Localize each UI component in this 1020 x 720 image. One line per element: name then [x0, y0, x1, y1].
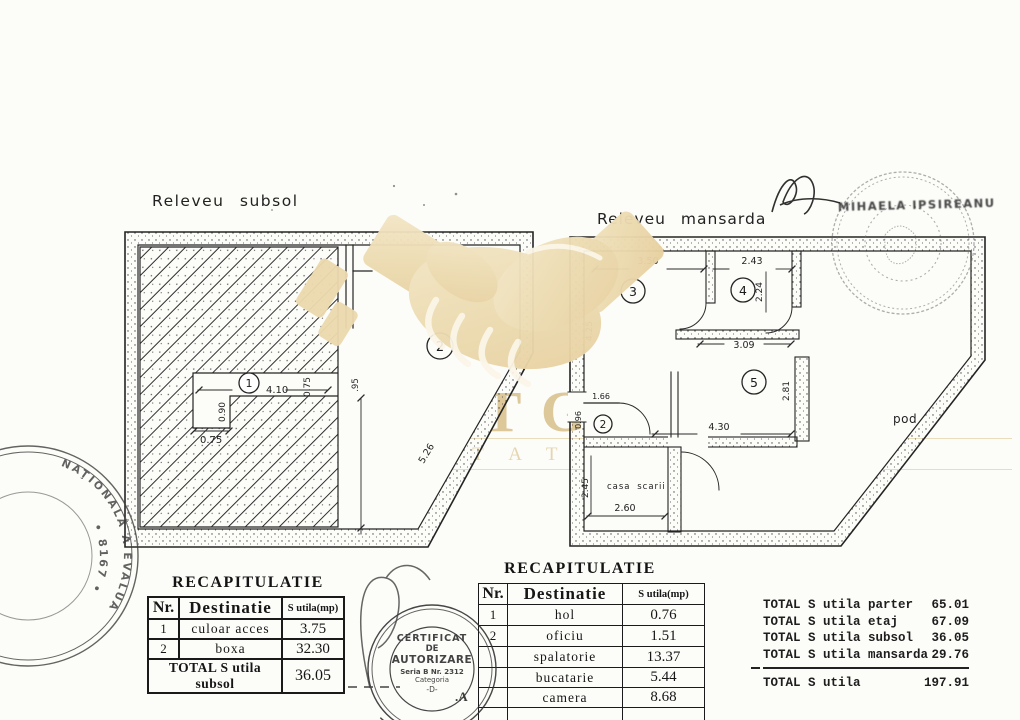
- mansarda-door-arcs: [619, 303, 792, 490]
- scanned-floorplan-document: TRUST GROUP ESTATE Releveu subsol: [0, 0, 1020, 720]
- svg-text:• 8167 •: • 8167 •: [88, 522, 110, 596]
- header-nr: Nr.: [479, 584, 508, 605]
- cert-line-2: DE: [426, 644, 439, 654]
- dimension-label: 2.81: [782, 381, 792, 401]
- cell-nr: [479, 668, 508, 688]
- cell-s: 1.51: [623, 626, 705, 647]
- signature-top-right: [772, 176, 840, 214]
- cell-dest: culoar acces: [179, 619, 282, 639]
- mansarda-room-labels: pod casa scarii: [607, 412, 917, 492]
- stamp-number: • 8167 •: [88, 522, 110, 596]
- svg-text:NAŢIONALĂ A EVALUA: NAŢIONALĂ A EVALUA: [60, 457, 133, 614]
- table-row: 1 hol 0.76: [479, 605, 705, 626]
- room-number: 5: [750, 375, 758, 390]
- dimension-label: 3.09: [733, 340, 754, 351]
- dimension-label: 3.50: [637, 256, 658, 267]
- cell-dest: hol: [508, 605, 623, 626]
- room-number: 2: [600, 419, 607, 431]
- total-value: 67.09: [931, 614, 969, 631]
- cell-dest: oficiu: [508, 626, 623, 647]
- cell-nr: 1: [479, 605, 508, 626]
- dimension-label: 2.45: [581, 478, 591, 498]
- total-line: TOTAL S utila subsol 36.05: [763, 630, 969, 647]
- cert-line-5: Categoria: [415, 676, 449, 684]
- dimension-label: 2.60: [614, 503, 635, 514]
- mansarda-table-title: RECAPITULATIE: [500, 560, 660, 578]
- header-dest: Destinatie: [508, 584, 623, 605]
- total-label: TOTAL S utila subsol: [763, 630, 913, 647]
- cert-line-4: Seria B Nr. 2312: [400, 668, 464, 676]
- mansarda-plan-title: Releveu mansarda: [597, 210, 766, 228]
- subsol-recap-table: Nr. Destinatie S utila(mp) 1 culoar acce…: [147, 596, 345, 694]
- cell-nr: [479, 688, 508, 708]
- watermark-rule-bottom: [330, 469, 1012, 470]
- total-value: 65.01: [931, 597, 969, 614]
- table-total-row: TOTAL S utila subsol 36.05: [148, 659, 344, 693]
- subsol-plan-title: Releveu subsol: [152, 192, 299, 210]
- cell-dest: boxa: [179, 639, 282, 659]
- total-value: 29.76: [931, 647, 969, 664]
- subsol-dimensions: 4.10 0.75 0.90 0.75 .95 5.26: [200, 377, 437, 466]
- cert-line-3: AUTORIZARE: [392, 654, 472, 666]
- cell-nr: 1: [148, 619, 179, 639]
- signature-bottom: [361, 565, 430, 688]
- subsol-room-markers: 1 2: [239, 333, 453, 393]
- grand-total-line: TOTAL S utila 197.91: [763, 674, 969, 692]
- left-round-stamp: NAŢIONALĂ A EVALUA • 8167 •: [0, 446, 138, 666]
- dimension-label: 4.25: [585, 321, 595, 341]
- cell-nr: [479, 708, 508, 720]
- total-label: TOTAL S utila parter: [763, 597, 913, 614]
- header-nr: Nr.: [148, 597, 179, 619]
- cell-s: 5.44: [623, 668, 705, 688]
- dimension-label: 0.75: [303, 377, 313, 397]
- total-label: TOTAL S utila mansarda: [763, 647, 928, 664]
- handshake-watermark: [294, 208, 667, 388]
- stamp-arc-text: NAŢIONALĂ A EVALUA: [60, 457, 133, 614]
- grand-total-value: 197.91: [924, 674, 969, 692]
- mansarda-interior-walls: [584, 251, 809, 532]
- total-label: TOTAL S utila subsol: [148, 659, 282, 693]
- watermark-brand-text: TRUST GROUP: [316, 378, 765, 445]
- dimension-label: 0.75: [200, 435, 222, 446]
- dimension-label: .95: [351, 378, 361, 392]
- cert-line-6: -D-: [426, 685, 437, 694]
- room-number: 3: [629, 284, 637, 299]
- table-header-row: Nr. Destinatie S utila(mp): [479, 584, 705, 605]
- table-row: bucatarie 5.44: [479, 668, 705, 688]
- total-line: TOTAL S utila parter 65.01: [763, 597, 969, 614]
- area-totals-block: TOTAL S utila parter 65.01 TOTAL S utila…: [763, 597, 969, 692]
- cell-dest: [508, 708, 623, 720]
- table-row: 2 boxa 32.30: [148, 639, 344, 659]
- cell-s: 3.75: [282, 619, 344, 639]
- mansarda-walls: [568, 237, 985, 546]
- bottom-certificate-stamp: MINISTERUL ADMINISTRAŢIEI PUBLICE CERTIF…: [348, 565, 496, 720]
- watermark-rule-top: [330, 438, 1012, 439]
- mansarda-room-markers: 3 4 5 2: [594, 278, 766, 433]
- subsol-table-title: RECAPITULATIE: [158, 574, 338, 592]
- header-s: S utila(mp): [623, 584, 705, 605]
- cell-nr: 2: [148, 639, 179, 659]
- header-s: S utila(mp): [282, 597, 344, 619]
- subsol-plan: Releveu subsol 4.10 0.75: [125, 192, 533, 547]
- scan-noise: [271, 185, 457, 211]
- total-line: TOTAL S utila mansarda 29.76: [763, 647, 969, 664]
- dimension-label: 5.26: [417, 442, 437, 466]
- table-row: 1 culoar acces 3.75: [148, 619, 344, 639]
- dimension-label: 2.43: [741, 256, 762, 267]
- cell-nr: [479, 647, 508, 668]
- dimension-label: 0.90: [218, 402, 228, 422]
- total-label: TOTAL S utila etaj: [763, 614, 898, 631]
- cell-s: 13.37: [623, 647, 705, 668]
- subsol-dimension-lines: [191, 387, 364, 534]
- dimension-label: 0.96: [574, 411, 583, 429]
- dimension-label: 4.30: [708, 422, 729, 433]
- top-right-stamp: MIHAELA IPSIREANU: [772, 172, 996, 314]
- mansarda-dimension-lines: [585, 266, 795, 519]
- table-row-partial: [479, 708, 705, 720]
- room-number: 4: [739, 283, 747, 298]
- stamp-ring-text: MINISTERUL ADMINISTRAŢIEI PUBLICE: [363, 715, 473, 720]
- cell-dest: bucatarie: [508, 668, 623, 688]
- totals-separator: [763, 667, 969, 669]
- grand-total-label: TOTAL S utila: [763, 674, 861, 692]
- table-header-row: Nr. Destinatie S utila(mp): [148, 597, 344, 619]
- cell-s: 8.68: [623, 688, 705, 708]
- dimension-label: 2.24: [755, 282, 765, 302]
- casa-scarii-label: casa scarii: [607, 482, 666, 492]
- subsol-hatched-area: [140, 247, 338, 527]
- header-dest: Destinatie: [179, 597, 282, 619]
- room-number: 2: [436, 340, 444, 355]
- handshake-finger-lines: [428, 246, 600, 384]
- pod-label: pod: [893, 412, 917, 426]
- dimension-label: 4.10: [266, 385, 288, 396]
- total-line: TOTAL S utila etaj 67.09: [763, 614, 969, 631]
- watermark-estate-text: ESTATE: [398, 444, 621, 466]
- stamp-annotation: .A: [455, 689, 468, 704]
- table-row: spalatorie 13.37: [479, 647, 705, 668]
- room-number: 1: [246, 377, 253, 390]
- stamp-name-text: MIHAELA IPSIREANU: [838, 196, 996, 214]
- cell-nr: 2: [479, 626, 508, 647]
- handshake-hands: [396, 218, 634, 388]
- mansarda-dimensions: 3.50 2.43 2.24 4.25 3.09 2.81 4.30 1.66 …: [574, 256, 792, 514]
- total-value: 36.05: [282, 659, 344, 693]
- cell-s: 0.76: [623, 605, 705, 626]
- cell-dest: camera: [508, 688, 623, 708]
- svg-text:MINISTERUL ADMINISTRAŢIEI PUBL: MINISTERUL ADMINISTRAŢIEI PUBLICE: [363, 715, 473, 720]
- mansarda-plan: Releveu mansarda: [568, 210, 985, 546]
- subsol-walls: [125, 232, 533, 547]
- table-row: camera 8.68: [479, 688, 705, 708]
- subsol-interior-walls: [346, 245, 372, 328]
- table-row: 2 oficiu 1.51: [479, 626, 705, 647]
- dimension-label: 1.66: [592, 392, 610, 401]
- cert-line-1: CERTIFICAT: [397, 633, 467, 644]
- cell-s: [623, 708, 705, 720]
- mansarda-recap-table: Nr. Destinatie S utila(mp) 1 hol 0.76 2 …: [478, 583, 705, 720]
- cell-dest: spalatorie: [508, 647, 623, 668]
- total-value: 36.05: [931, 630, 969, 647]
- cell-s: 32.30: [282, 639, 344, 659]
